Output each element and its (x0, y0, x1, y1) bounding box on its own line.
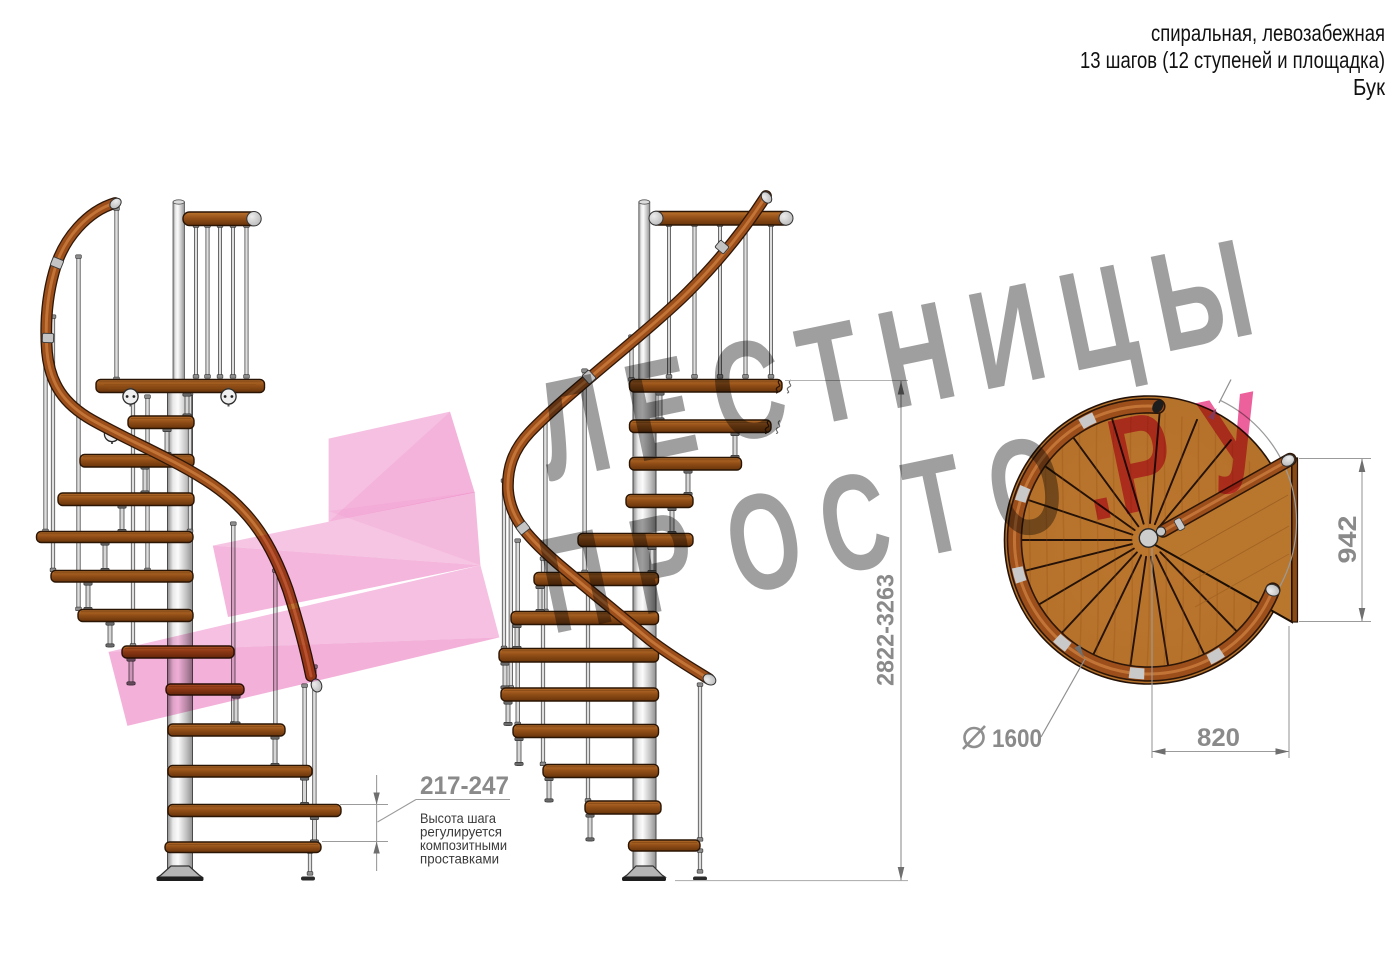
svg-text:13 шагов (12 ступеней и площад: 13 шагов (12 ступеней и площадка) (1080, 47, 1385, 73)
svg-text:спиральная, левозабежная: спиральная, левозабежная (1151, 20, 1385, 46)
svg-text:проставками: проставками (420, 851, 499, 867)
svg-text:820: 820 (1197, 724, 1240, 752)
svg-text:217-247: 217-247 (420, 772, 509, 800)
svg-text:Бук: Бук (1353, 74, 1386, 100)
svg-text:942: 942 (1334, 516, 1362, 564)
svg-text:1600: 1600 (992, 725, 1042, 753)
